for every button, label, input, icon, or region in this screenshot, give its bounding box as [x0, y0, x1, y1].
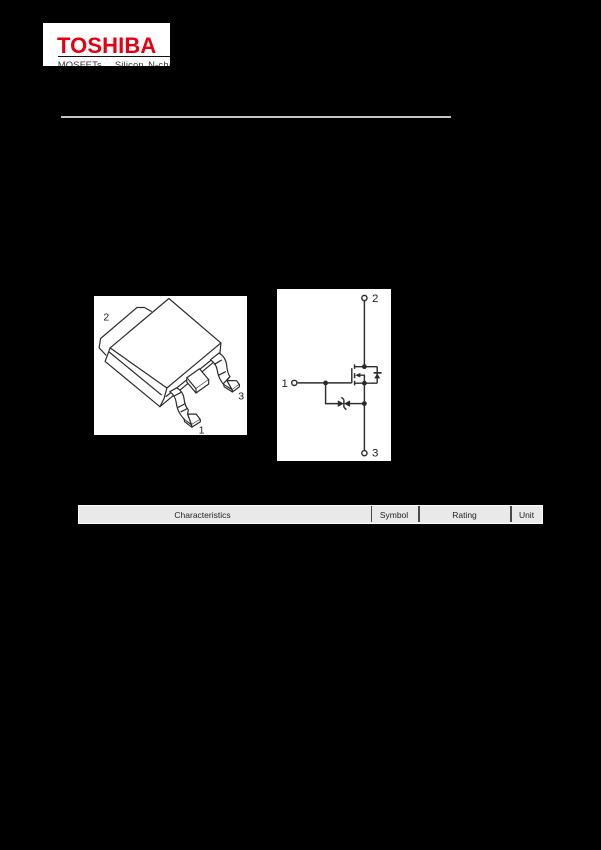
svg-text:1: 1 [281, 378, 287, 390]
svg-text:2: 2 [372, 293, 378, 305]
svg-text:1: 1 [198, 425, 204, 435]
svg-text:3: 3 [238, 391, 244, 402]
svg-text:2: 2 [103, 312, 109, 323]
svg-text:3: 3 [372, 447, 378, 459]
